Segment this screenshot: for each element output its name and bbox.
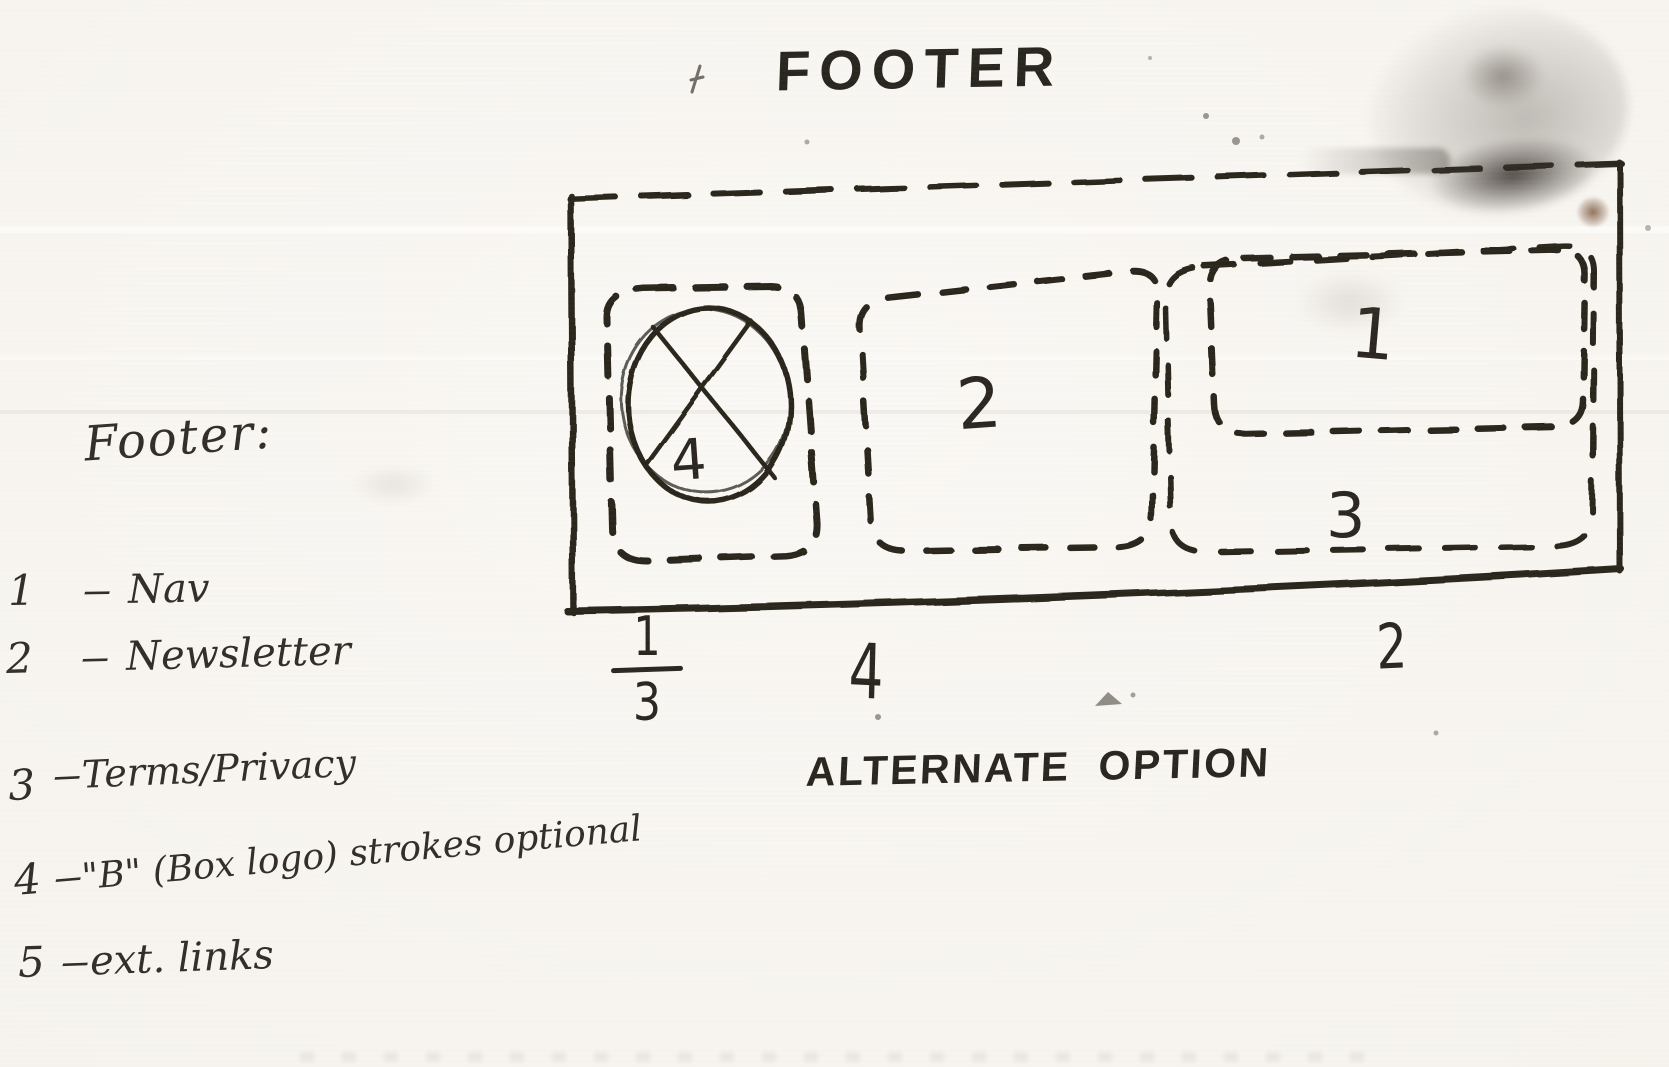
dash-separator: – [45, 853, 91, 902]
nav-zone-box [1210, 250, 1585, 434]
newsletter-zone-box [860, 271, 1157, 552]
terms-zone-number: 3 [1326, 479, 1365, 552]
alternate-option-caption: ALTERNATE OPTION [805, 739, 1272, 796]
fraction-numerator: 1 [616, 610, 678, 664]
container-bottom-edge [567, 569, 1621, 611]
dash-separator: – [48, 633, 142, 681]
nav-zone-number: 1 [1347, 292, 1399, 378]
container-left-edge [571, 196, 573, 612]
legend-item-ext-links: 5 – ext. links [17, 929, 274, 987]
column-width-right: 2 [1376, 615, 1408, 678]
legend-item-label: ext. links [89, 932, 274, 984]
terms-zone-box [1166, 246, 1594, 552]
legend-item-nav: 1 – Nav [8, 562, 210, 615]
newsletter-zone-number: 2 [954, 361, 1004, 446]
dash-separator: – [44, 751, 91, 799]
legend-item-label: Newsletter [125, 628, 351, 680]
scanned-wireframe-sketch: FOOTER [0, 0, 1669, 1067]
logo-zone-number: 4 [669, 427, 709, 494]
scan-edge-noise [300, 1052, 1380, 1062]
column-width-middle: 4 [848, 633, 885, 711]
pen-doodle [691, 66, 703, 92]
dash-separator: – [50, 567, 144, 615]
container-top-edge [570, 163, 1621, 199]
container-right-edge [1619, 162, 1620, 571]
footer-wireframe-diagram: 4 2 1 3 [0, 0, 1669, 1067]
ink-specks [805, 56, 1652, 736]
dash-separator: – [52, 938, 99, 986]
legend-item-newsletter: 2 – Newsletter [5, 625, 351, 683]
column-width-fraction: 1 3 [608, 610, 686, 729]
fraction-denominator: 3 [614, 677, 680, 729]
